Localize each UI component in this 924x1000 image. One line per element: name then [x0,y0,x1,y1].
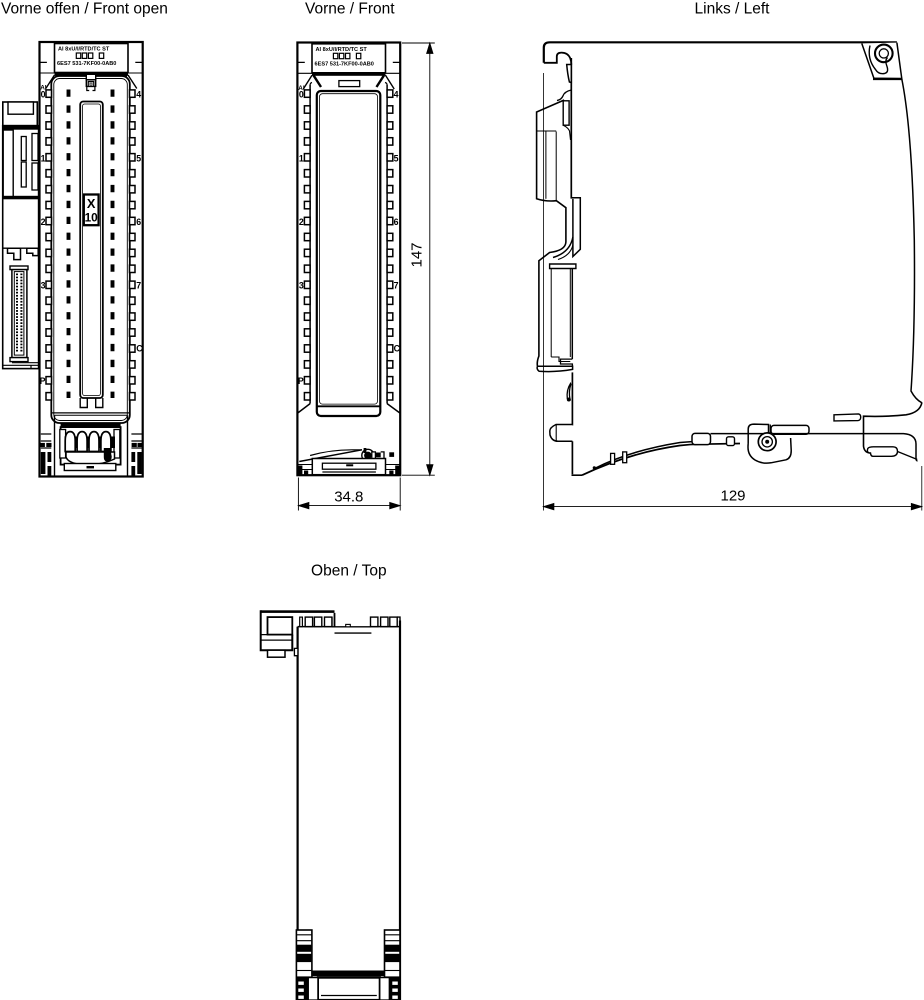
svg-text:5: 5 [394,154,399,164]
svg-text:C: C [394,344,401,354]
svg-text:P: P [298,376,304,386]
svg-text:C: C [136,344,143,354]
svg-text:4: 4 [136,90,141,100]
svg-text:129: 129 [720,488,745,505]
svg-text:Vorne offen / Front open: Vorne offen / Front open [1,1,168,18]
svg-text:X: X [87,196,96,211]
svg-text:Oben / Top: Oben / Top [311,563,387,580]
svg-text:2: 2 [41,217,46,227]
svg-text:2: 2 [299,217,304,227]
svg-text:3: 3 [299,281,304,291]
svg-text:7: 7 [394,281,399,291]
svg-text:P: P [40,376,46,386]
svg-text:1: 1 [41,154,46,164]
svg-text:3: 3 [41,281,46,291]
svg-text:0: 0 [299,90,304,100]
svg-text:7: 7 [136,281,141,291]
svg-text:6ES7 531-7KF00-0AB0: 6ES7 531-7KF00-0AB0 [57,61,116,67]
svg-text:1: 1 [299,154,304,164]
svg-text:6ES7 531-7KF00-0AB0: 6ES7 531-7KF00-0AB0 [315,61,374,67]
svg-text:5: 5 [136,154,141,164]
svg-text:Links / Left: Links / Left [695,1,771,18]
svg-text:6: 6 [136,217,141,227]
svg-text:10: 10 [85,211,99,225]
svg-text:AI 8xU/I/RTD/TC ST: AI 8xU/I/RTD/TC ST [58,47,110,53]
svg-text:Vorne / Front: Vorne / Front [305,1,395,18]
svg-text:6: 6 [394,217,399,227]
svg-text:4: 4 [394,90,399,100]
svg-text:34.8: 34.8 [334,489,363,506]
svg-text:0: 0 [41,90,46,100]
svg-text:147: 147 [409,242,426,267]
svg-text:AI 8xU/I/RTD/TC ST: AI 8xU/I/RTD/TC ST [316,47,368,53]
